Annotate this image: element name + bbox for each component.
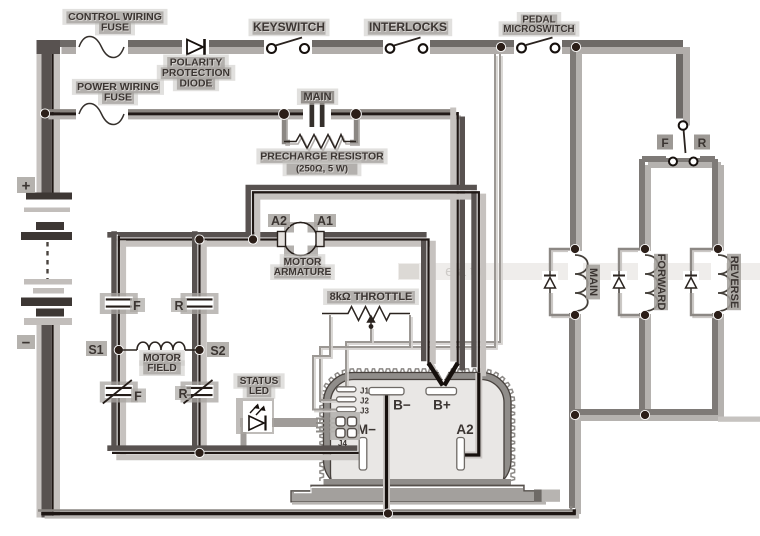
svg-text:J4: J4 [338,439,347,448]
svg-text:(250Ω, 5 W): (250Ω, 5 W) [296,164,348,175]
svg-text:REVERSE: REVERSE [728,256,740,309]
svg-text:J3: J3 [360,407,369,416]
svg-text:POLARITY: POLARITY [170,58,223,69]
svg-text:S2: S2 [210,344,225,358]
svg-text:INTERLOCKS: INTERLOCKS [369,20,447,34]
svg-text:ARMATURE: ARMATURE [274,267,332,278]
svg-text:FIELD: FIELD [147,363,176,374]
svg-text:MICROSWITCH: MICROSWITCH [503,24,574,35]
svg-text:J1: J1 [360,387,369,396]
svg-text:R: R [178,387,187,401]
svg-text:FUSE: FUSE [104,92,132,104]
svg-text:F: F [133,299,141,313]
svg-text:FUSE: FUSE [101,22,129,34]
svg-text:A2: A2 [271,214,287,228]
svg-text:+: + [22,178,31,195]
svg-text:PROTECTION: PROTECTION [162,68,230,79]
svg-text:FORWARD: FORWARD [655,254,667,311]
svg-text:MAIN: MAIN [587,268,599,296]
svg-text:MAIN: MAIN [303,91,331,103]
svg-text:−: − [22,335,31,352]
svg-text:PRECHARGE RESISTOR: PRECHARGE RESISTOR [260,151,384,163]
svg-text:F: F [134,390,142,404]
svg-text:A2: A2 [456,422,473,437]
svg-text:DIODE: DIODE [180,78,213,89]
svg-text:B−: B− [393,398,411,413]
svg-text:LED: LED [249,386,269,397]
svg-text:B+: B+ [433,398,451,413]
svg-text:KEYSWITCH: KEYSWITCH [253,20,325,34]
svg-text:F: F [661,136,668,150]
svg-text:S1: S1 [88,343,103,357]
svg-text:R: R [174,299,183,313]
svg-text:A1: A1 [317,214,333,228]
svg-text:R: R [698,136,707,150]
svg-text:8kΩ THROTTLE: 8kΩ THROTTLE [330,291,413,303]
svg-text:J2: J2 [360,397,369,406]
